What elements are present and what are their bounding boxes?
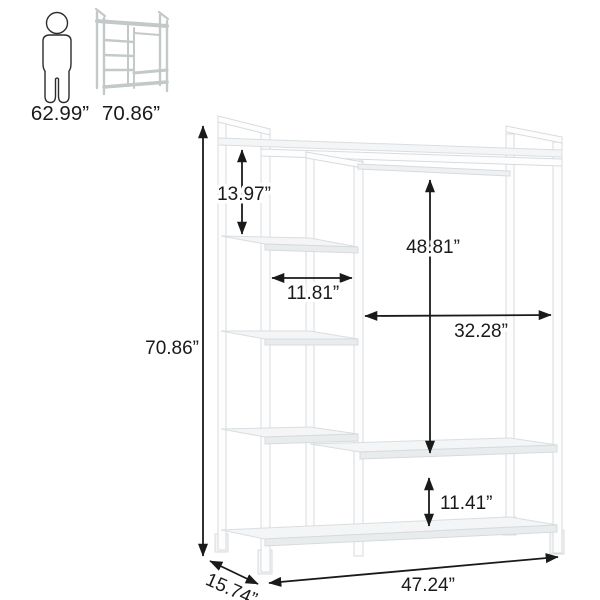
dim-overall-height-label: 70.86” xyxy=(145,338,199,359)
dim-shelf-width-label: 11.81” xyxy=(287,283,339,304)
thumbnail-height-label: 70.86” xyxy=(102,102,160,125)
person-head xyxy=(47,13,68,34)
left-shelf-2-edge xyxy=(265,339,358,345)
hanging-rod xyxy=(358,164,510,176)
thumb-shelf xyxy=(134,70,167,73)
thumb-rod xyxy=(134,33,160,35)
thumb-shelf xyxy=(104,55,134,56)
left-shelf-2-top xyxy=(221,331,358,339)
mini-garment-rack-icon xyxy=(96,9,168,94)
person-height-label: 62.99” xyxy=(31,102,89,125)
dim-hanging-width-line xyxy=(365,315,551,316)
rack-post-front-middle xyxy=(354,161,363,556)
dim-overall-width-label: 47.24” xyxy=(401,575,455,596)
diagram-canvas: 62.99” 70.86” xyxy=(0,0,600,600)
dim-top-compartment-label: 13.97” xyxy=(217,184,271,205)
rack-post-front-right xyxy=(553,142,562,553)
dim-bottom-gap-label: 11.41” xyxy=(440,493,492,514)
thumb-shelf xyxy=(104,40,134,42)
reference-scale-group: 62.99” 70.86” xyxy=(31,9,168,125)
product-dimension-diagram: 62.99” 70.86” xyxy=(0,0,600,600)
dim-hanging-width-label: 32.28” xyxy=(454,321,508,342)
thumb-top-shelf xyxy=(97,21,167,26)
dim-hanging-height-label: 48.81” xyxy=(406,237,460,258)
dim-depth-label: 15.74” xyxy=(202,569,260,600)
person-body xyxy=(43,35,71,103)
person-silhouette-icon xyxy=(43,13,71,103)
thumb-bottom-shelf xyxy=(104,82,167,87)
